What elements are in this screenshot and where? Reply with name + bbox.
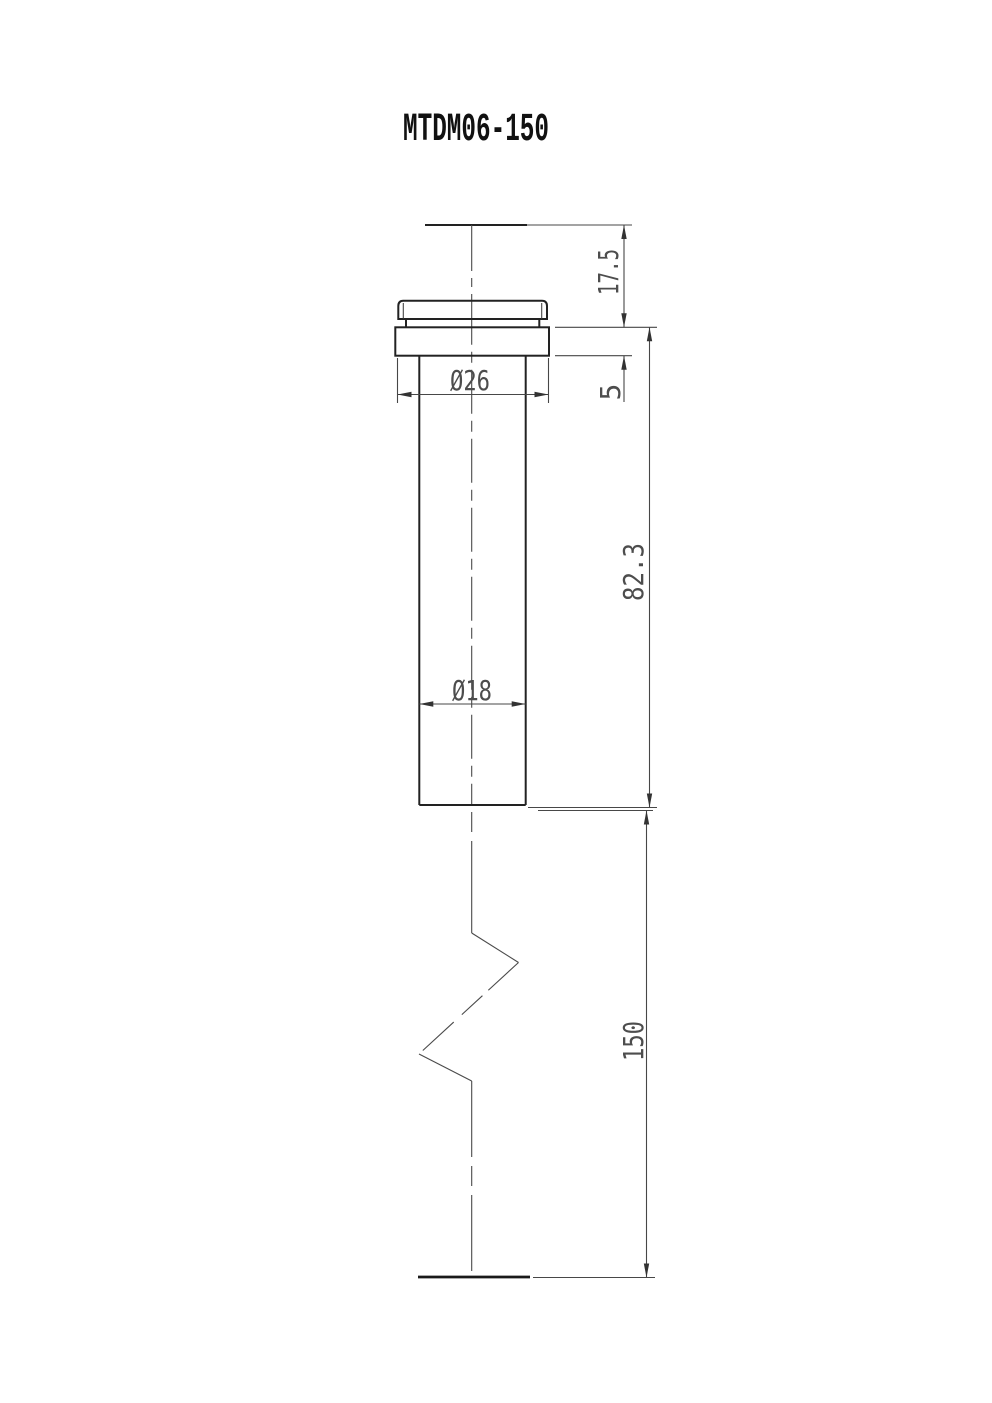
dim-shaft-dia-label: Ø18 <box>452 674 492 707</box>
dim-flange-dia-label: Ø26 <box>450 364 490 397</box>
dim-flange-thickness-label: 5 <box>594 384 627 401</box>
dim-body-length-label: 82.3 <box>617 543 650 601</box>
arrowhead-up-icon <box>644 811 649 825</box>
dim-head-height-label: 17.5 <box>592 249 625 295</box>
arrowhead-up-icon <box>647 327 652 341</box>
break-line-lower <box>419 1054 472 1081</box>
arrowhead-right-icon <box>535 392 549 397</box>
drawing-title: MTDM06-150 <box>403 108 549 153</box>
arrowhead-right-icon <box>512 701 526 706</box>
arrowhead-up-icon <box>621 356 626 370</box>
cap-outline <box>398 301 547 319</box>
arrowhead-down-icon <box>647 794 652 808</box>
break-line-upper <box>472 933 519 963</box>
break-line-middle <box>419 963 519 1055</box>
arrowhead-left-icon <box>398 392 412 397</box>
arrowhead-left-icon <box>419 701 433 706</box>
arrowhead-up-icon <box>621 225 626 239</box>
arrowhead-down-icon <box>644 1264 649 1278</box>
engineering-drawing: MTDM06-150 <box>0 0 992 1403</box>
arrowhead-down-icon <box>621 313 626 327</box>
drawing-sheet: MTDM06-150 <box>0 0 992 1403</box>
dim-total-length-label: 150 <box>617 1021 650 1061</box>
